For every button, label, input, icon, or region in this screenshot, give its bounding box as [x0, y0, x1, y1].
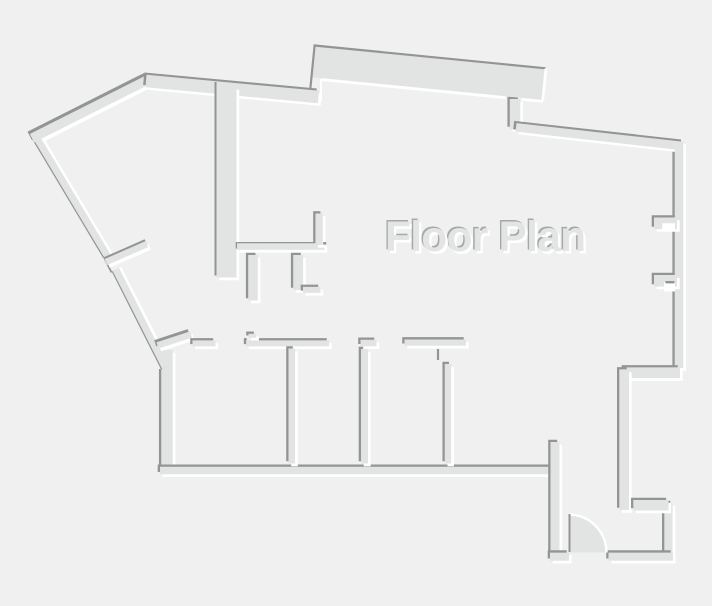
svg-text:Floor Plan: Floor Plan	[385, 214, 585, 261]
